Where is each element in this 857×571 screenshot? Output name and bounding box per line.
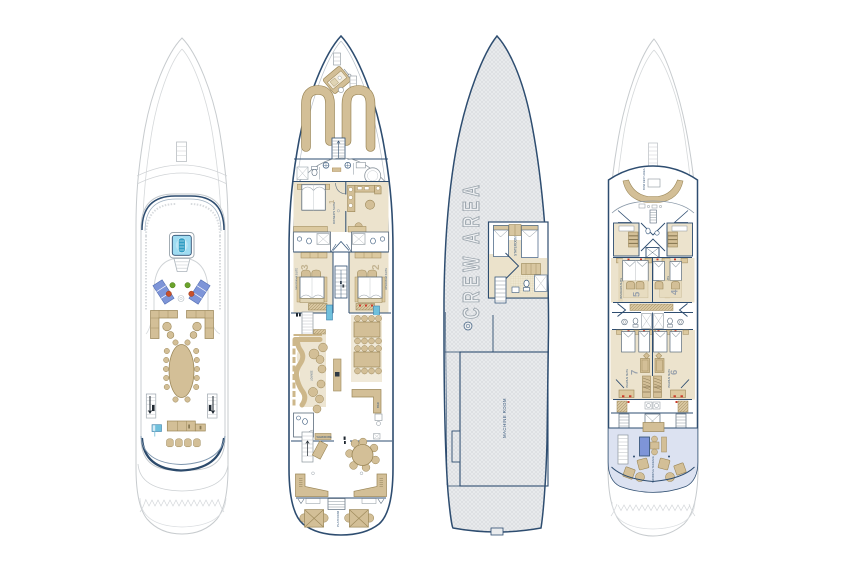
svg-text:WARDROBE: WARDROBE (317, 435, 332, 439)
svg-text:5: 5 (632, 291, 643, 297)
svg-text:MACHINE ROOM: MACHINE ROOM (502, 398, 507, 438)
svg-text:PANORAMA SUITE: PANORAMA SUITE (385, 268, 388, 290)
svg-text:1: 1 (327, 200, 336, 204)
svg-text:PREMIUM SUITE: PREMIUM SUITE (668, 369, 671, 388)
svg-text:PLATFORM: PLATFORM (336, 510, 340, 527)
svg-text:3: 3 (300, 264, 311, 270)
svg-text:OWNER'S SUITE: OWNER'S SUITE (332, 202, 336, 224)
svg-text:CREW AREA: CREW AREA (459, 181, 485, 319)
svg-text:2: 2 (371, 264, 382, 270)
svg-text:BAR: BAR (376, 402, 380, 408)
svg-text:BOW REST AREA: BOW REST AREA (642, 168, 646, 190)
svg-text:STATEROOM: STATEROOM (514, 236, 518, 256)
svg-text:PREMIUM SUITE: PREMIUM SUITE (626, 369, 629, 388)
svg-text:7: 7 (630, 370, 641, 375)
svg-text:4: 4 (670, 289, 681, 295)
svg-text:SWIMMING TERRACE: SWIMMING TERRACE (651, 456, 655, 483)
svg-text:LOUNGE: LOUNGE (311, 370, 314, 381)
